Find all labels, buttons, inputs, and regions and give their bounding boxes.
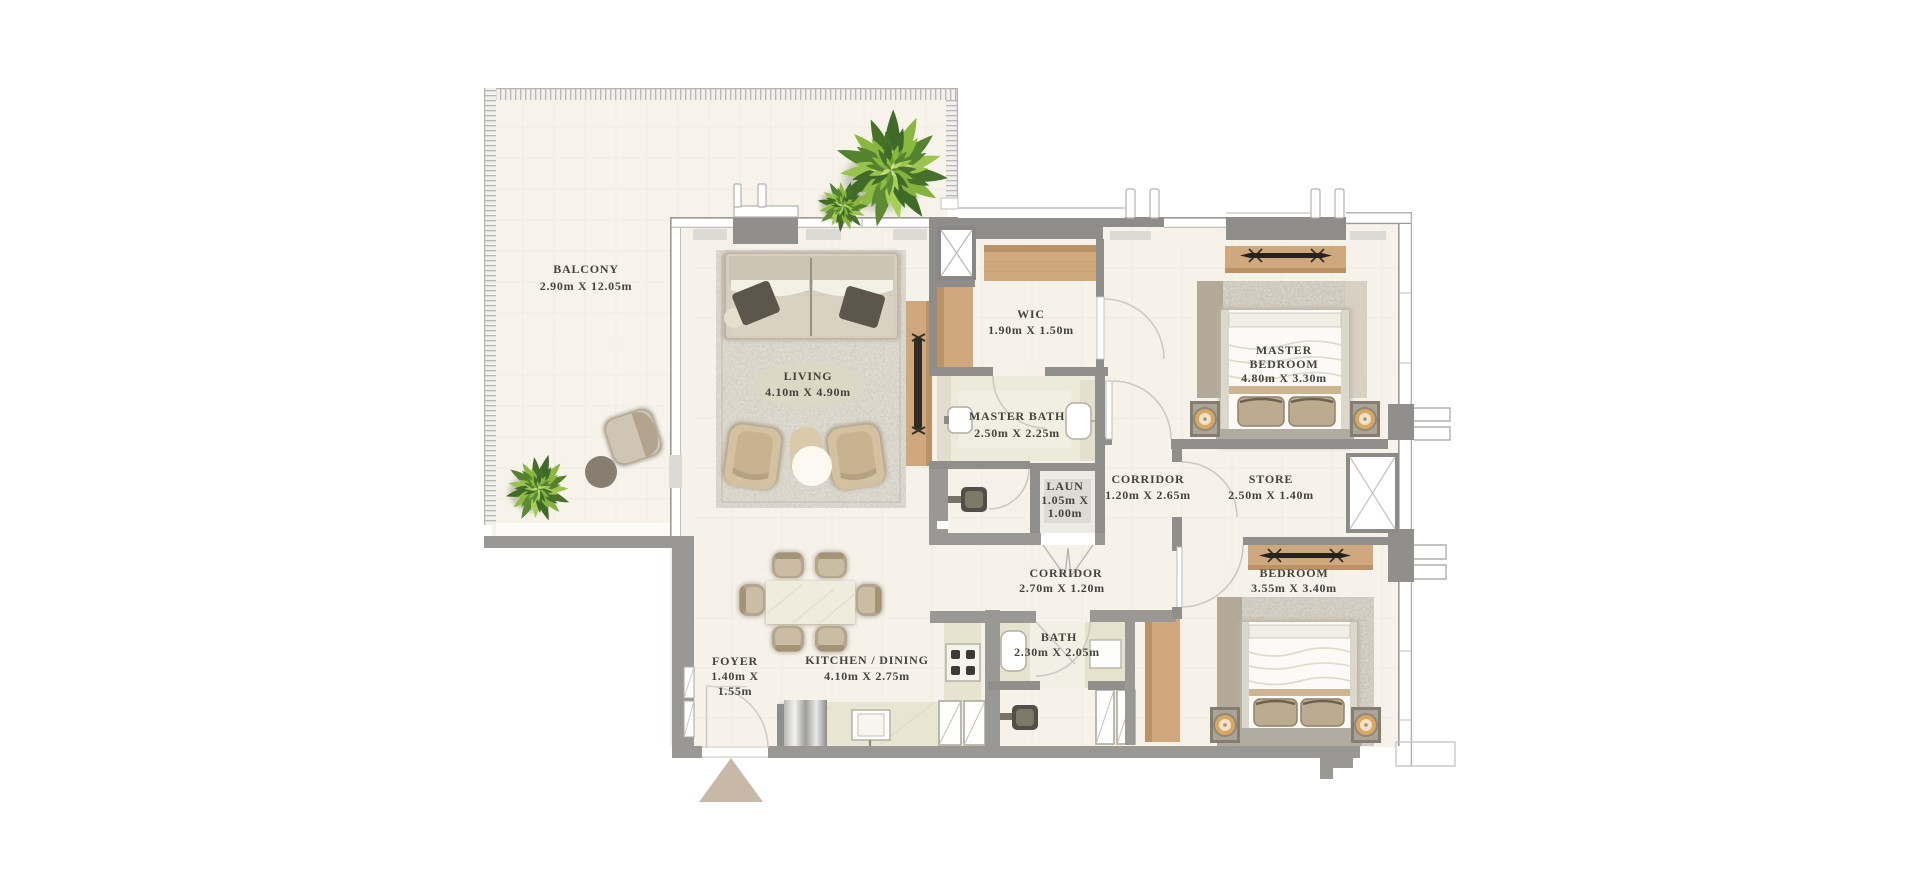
svg-text:WIC: WIC (1017, 307, 1045, 321)
svg-text:4.80m X 3.30m: 4.80m X 3.30m (1241, 371, 1327, 385)
svg-text:BEDROOM: BEDROOM (1260, 566, 1329, 580)
svg-text:1.55m: 1.55m (718, 684, 753, 698)
svg-text:BATH: BATH (1041, 630, 1077, 644)
svg-text:2.50m X 1.40m: 2.50m X 1.40m (1228, 488, 1314, 502)
svg-text:1.20m X 2.65m: 1.20m X 2.65m (1105, 488, 1191, 502)
svg-text:KITCHEN / DINING: KITCHEN / DINING (805, 653, 928, 667)
svg-text:BALCONY: BALCONY (553, 262, 619, 276)
svg-text:1.40m X: 1.40m X (711, 669, 759, 683)
svg-text:2.30m X 2.05m: 2.30m X 2.05m (1014, 645, 1100, 659)
svg-text:1.00m: 1.00m (1048, 506, 1083, 520)
svg-text:2.50m X 2.25m: 2.50m X 2.25m (974, 426, 1060, 440)
svg-text:1.05m X: 1.05m X (1041, 493, 1089, 507)
svg-text:1.90m X 1.50m: 1.90m X 1.50m (988, 323, 1074, 337)
svg-text:4.10m X 4.90m: 4.10m X 4.90m (765, 385, 851, 399)
svg-text:CORRIDOR: CORRIDOR (1029, 566, 1102, 580)
svg-text:STORE: STORE (1249, 472, 1293, 486)
svg-text:4.10m X 2.75m: 4.10m X 2.75m (824, 669, 910, 683)
svg-text:2.70m X 1.20m: 2.70m X 1.20m (1019, 581, 1105, 595)
svg-text:LAUN: LAUN (1046, 479, 1083, 493)
svg-text:3.55m X 3.40m: 3.55m X 3.40m (1251, 581, 1337, 595)
svg-text:FOYER: FOYER (712, 654, 758, 668)
svg-text:BEDROOM: BEDROOM (1250, 357, 1319, 371)
svg-text:2.90m X 12.05m: 2.90m X 12.05m (540, 279, 632, 293)
svg-text:CORRIDOR: CORRIDOR (1111, 472, 1184, 486)
svg-text:LIVING: LIVING (784, 369, 833, 383)
svg-text:MASTER BATH: MASTER BATH (969, 409, 1065, 423)
svg-text:MASTER: MASTER (1256, 343, 1312, 357)
